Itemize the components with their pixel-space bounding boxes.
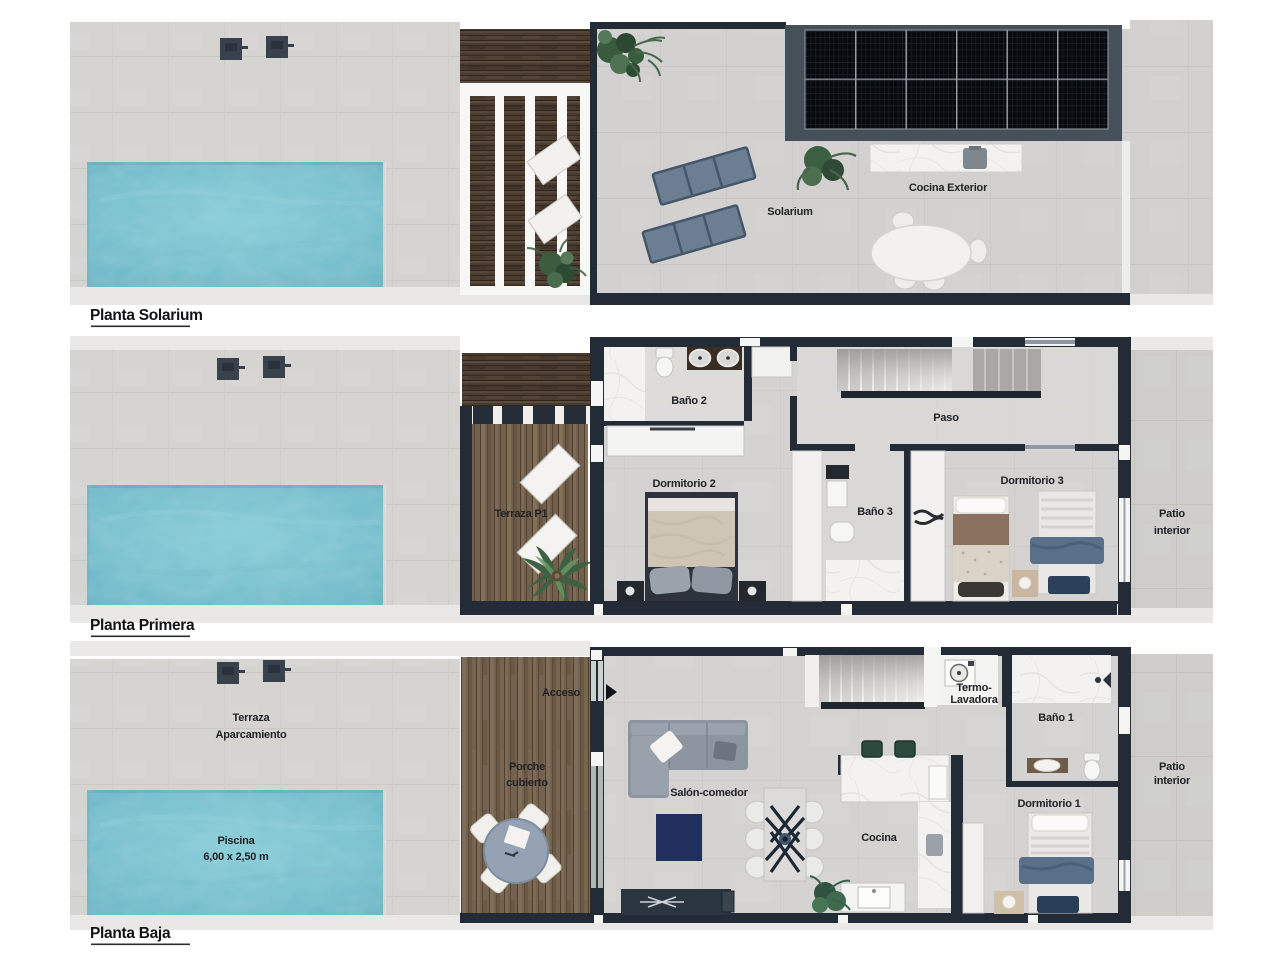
svg-text:Porche: Porche xyxy=(509,761,545,773)
svg-text:Piscina: Piscina xyxy=(217,835,255,847)
svg-text:Dormitorio 3: Dormitorio 3 xyxy=(1001,475,1064,487)
svg-text:6,00 x 2,50 m: 6,00 x 2,50 m xyxy=(203,851,269,863)
svg-text:Termo-: Termo- xyxy=(956,682,992,694)
svg-text:Planta Solarium: Planta Solarium xyxy=(90,307,203,324)
svg-text:cubierto: cubierto xyxy=(506,777,548,789)
svg-text:Planta Primera: Planta Primera xyxy=(90,617,195,634)
svg-text:Dormitorio 1: Dormitorio 1 xyxy=(1018,798,1081,810)
svg-text:Lavadora: Lavadora xyxy=(950,694,998,706)
svg-text:Planta Baja: Planta Baja xyxy=(90,925,171,942)
svg-text:Patio: Patio xyxy=(1159,508,1185,520)
svg-text:Solarium: Solarium xyxy=(767,206,813,218)
svg-text:interior: interior xyxy=(1154,775,1191,787)
svg-text:Baño 2: Baño 2 xyxy=(671,395,707,407)
svg-text:Aparcamiento: Aparcamiento xyxy=(216,729,287,741)
svg-text:interior: interior xyxy=(1154,525,1191,537)
svg-text:Salón-comedor: Salón-comedor xyxy=(670,787,748,799)
svg-text:Cocina Exterior: Cocina Exterior xyxy=(909,182,988,194)
svg-text:Dormitorio 2: Dormitorio 2 xyxy=(653,478,716,490)
svg-text:Paso: Paso xyxy=(933,412,959,424)
svg-text:Cocina: Cocina xyxy=(861,832,898,844)
svg-text:Acceso: Acceso xyxy=(542,687,580,699)
svg-text:Terraza P1: Terraza P1 xyxy=(495,508,548,520)
svg-text:Patio: Patio xyxy=(1159,761,1185,773)
svg-text:Baño 3: Baño 3 xyxy=(857,506,893,518)
svg-text:Baño 1: Baño 1 xyxy=(1038,712,1074,724)
svg-text:Terraza: Terraza xyxy=(233,712,271,724)
